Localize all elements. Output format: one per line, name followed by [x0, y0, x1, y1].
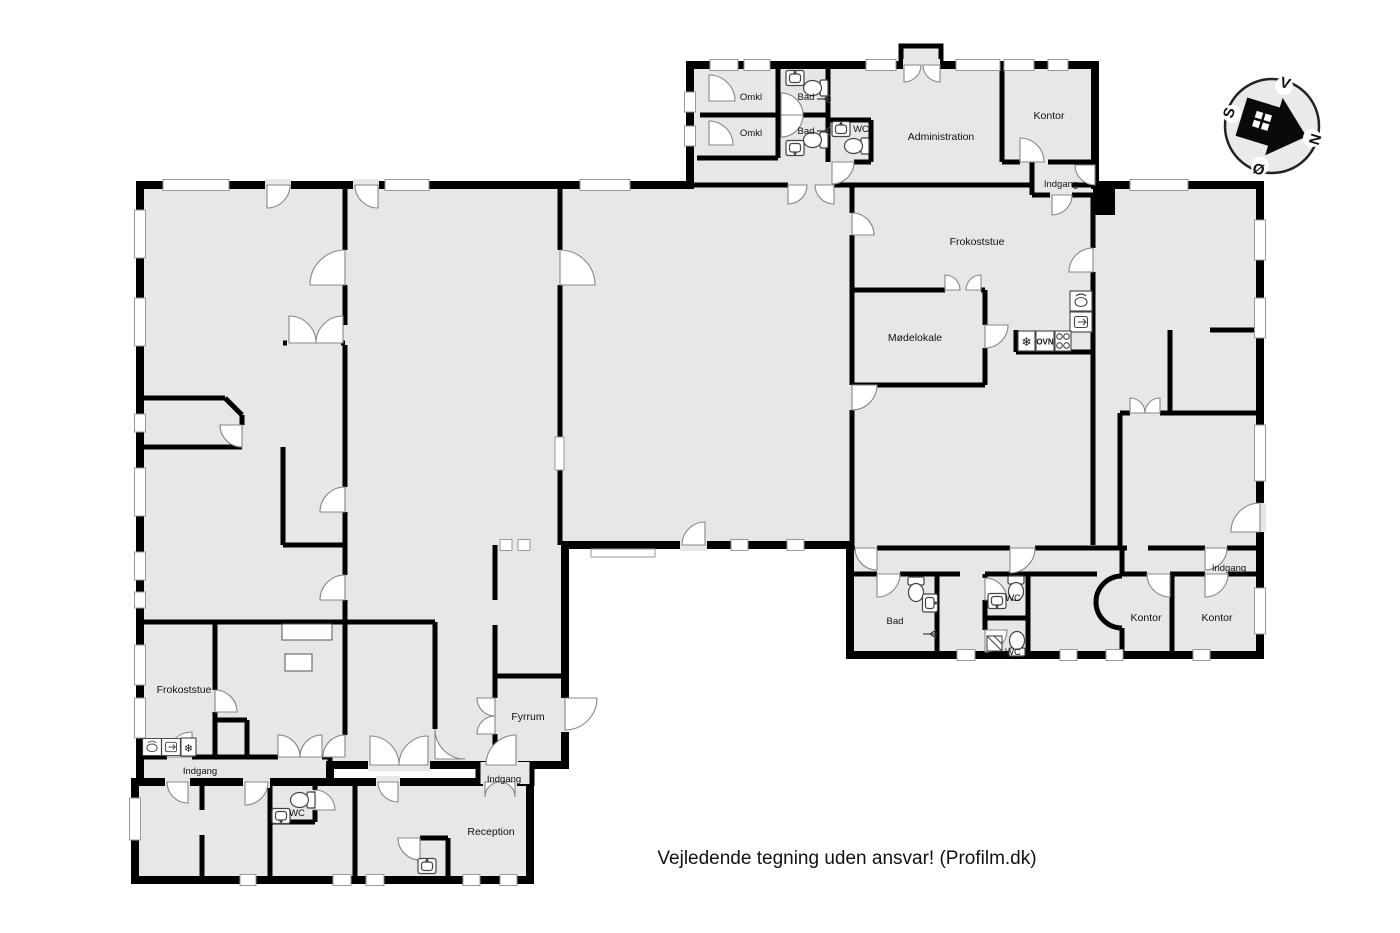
room-label-fyrrum: Fyrrum [511, 711, 544, 723]
toilet-icon [291, 792, 316, 808]
window [685, 92, 696, 112]
window [1130, 180, 1188, 191]
sink-icon [272, 809, 290, 824]
window [580, 180, 630, 191]
sink-icon [832, 122, 850, 137]
window [135, 592, 146, 608]
floor-plan-page: ❄ OVN ❄ Omkl Omkl Bad Bad WC Administrat… [0, 0, 1400, 933]
disclaimer-text: Vejledende tegning uden ansvar! (Profilm… [657, 848, 1036, 869]
room-label-wc-s-lower: WC [1005, 647, 1021, 658]
compass-rose: N S Ø V [1220, 74, 1324, 178]
stove-burners-icon [1055, 331, 1071, 351]
sink-icon [988, 594, 1006, 609]
dishwasher-icon [1070, 312, 1092, 332]
room-label-kontor-nw: Kontor [1034, 110, 1065, 122]
room-label-reception: Reception [467, 826, 514, 838]
window [500, 875, 517, 886]
window [685, 126, 696, 146]
window [135, 468, 146, 516]
window [1004, 60, 1034, 71]
window [385, 180, 429, 191]
window-sill [591, 549, 655, 557]
room-label-frokoststue-w: Frokoststue [157, 684, 212, 696]
window [135, 210, 146, 258]
kitchen-sink-icon [143, 739, 162, 756]
room-label-kontor-s-b: Kontor [1202, 612, 1233, 624]
cabinet [282, 624, 332, 640]
window [135, 698, 146, 738]
room-label-modelokale: Mødelokale [888, 332, 942, 344]
wall-block [1093, 185, 1115, 215]
window [710, 60, 738, 71]
window [1060, 650, 1077, 661]
window [1048, 60, 1068, 71]
room-label-indgang-sw: Indgang [183, 766, 217, 777]
toilet-icon [845, 138, 870, 154]
room-label-wc-s-upper: WC [1005, 593, 1021, 604]
window [744, 60, 770, 71]
window [500, 540, 512, 551]
room-label-kontor-s-a: Kontor [1131, 612, 1162, 624]
freezer-icon: ❄ [184, 743, 193, 755]
room-label-wc-sw: WC [289, 808, 305, 819]
window [1255, 425, 1266, 481]
cabinet [285, 654, 312, 671]
window [163, 180, 229, 191]
window [1193, 650, 1210, 661]
room-label-bad-s: Bad [887, 616, 904, 627]
room-label-bad-a: Bad [798, 92, 815, 103]
room-label-administration: Administration [908, 131, 975, 143]
room-label-indgang-s-mid: Indgang [487, 774, 521, 785]
window [366, 875, 384, 886]
window [866, 60, 896, 71]
window [130, 798, 141, 840]
room-label-bad-b: Bad [798, 126, 815, 137]
window [240, 875, 256, 886]
room-label-indgang-se: Indgang [1212, 563, 1246, 574]
window [518, 540, 530, 551]
room-label-omkl-a: Omkl [740, 92, 762, 103]
window [1255, 588, 1266, 634]
floor-plan: ❄ OVN ❄ Omkl Omkl Bad Bad WC Administrat… [0, 0, 1400, 933]
shower-tray-icon [987, 636, 1002, 651]
window [333, 875, 351, 886]
sink-icon [923, 594, 938, 612]
window [135, 414, 146, 432]
window [135, 298, 146, 346]
room-label-omkl-b: Omkl [740, 128, 762, 139]
oven-label: OVN [1036, 338, 1054, 347]
window [135, 552, 146, 580]
window [957, 650, 975, 661]
toilet-icon [908, 577, 924, 602]
glass-partition [555, 437, 564, 470]
room-label-indgang-ne: Indgang [1044, 179, 1078, 190]
window [1255, 220, 1266, 260]
window [463, 875, 480, 886]
window [731, 540, 748, 551]
sink-icon [418, 859, 436, 874]
freezer-icon: ❄ [1021, 335, 1031, 349]
window [135, 645, 146, 685]
window [1106, 650, 1123, 661]
window [1255, 298, 1266, 338]
sink-icon [786, 141, 804, 156]
sink-icon [786, 71, 804, 86]
room-label-wc-top: WC [853, 124, 869, 135]
kitchen-sink-icon [1070, 291, 1092, 311]
window [787, 540, 804, 551]
dishwasher-icon [162, 739, 181, 756]
room-label-frokoststue-e: Frokoststue [950, 236, 1005, 248]
door-arc [565, 698, 597, 730]
window [956, 60, 1000, 71]
